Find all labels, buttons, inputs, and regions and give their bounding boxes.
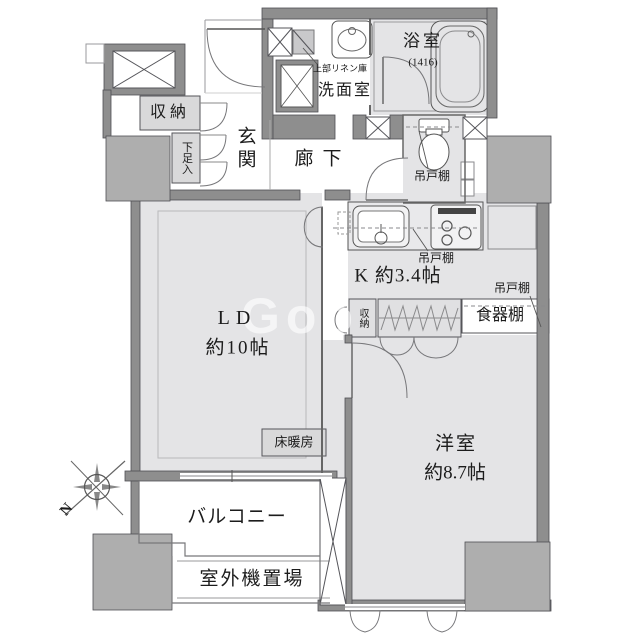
refrigerator-space <box>488 206 536 249</box>
passage-storage-label: 収納 <box>357 308 367 328</box>
floor-heating-label: 床暖房 <box>274 436 313 449</box>
passage-storage-door <box>335 307 347 333</box>
bath-label: 浴室 <box>403 33 443 50</box>
side-hatch-shaft <box>320 478 346 605</box>
pipe-space-boxes <box>461 162 474 196</box>
casement-windows <box>350 611 457 632</box>
western-room-size-label: 約8.7帖 <box>424 464 486 483</box>
outdoor-unit-label: 室外機置場 <box>199 570 304 589</box>
corridor-hatch-2 <box>463 117 487 139</box>
kitchen-shelf-label: 吊戸棚 <box>418 252 454 264</box>
bath-size-label: (1416) <box>408 58 437 69</box>
corridor-hatch-1 <box>366 117 390 139</box>
elevator-hatch <box>113 51 175 88</box>
washroom-hatch <box>268 28 292 56</box>
pantry-shelf-label: 吊戸棚 <box>494 282 530 294</box>
western-room-label: 洋室 <box>435 435 477 454</box>
hallway-label: 廊下 <box>285 150 350 169</box>
porch-lines <box>205 20 262 93</box>
elevator-annex <box>86 44 104 63</box>
western-window-band <box>345 604 465 610</box>
washroom-label: 洗面室 <box>318 83 372 99</box>
kitchen-label: K 約3.4帖 <box>354 267 441 286</box>
entrance-label: 玄関 <box>236 126 255 172</box>
linen-shelf-label: 上部リネン庫 <box>313 65 367 74</box>
shoe-cabinet-label: 下足入 <box>181 142 192 175</box>
kitchen-counter <box>338 202 483 250</box>
compass-icon <box>65 461 125 515</box>
toilet-shelf-label: 吊戸棚 <box>414 170 450 182</box>
living-label: LD <box>212 308 257 328</box>
floorplan: Goo 浴室 (1416) 上部リネン庫 洗面室 収納 下足入 玄関 廊下 吊戸… <box>0 0 640 640</box>
living-size-label: 約10帖 <box>205 339 270 358</box>
entrance-storage-label: 収納 <box>150 105 190 121</box>
front-door <box>207 29 265 87</box>
cupboard-label: 食器棚 <box>476 308 524 324</box>
duct-box <box>293 30 314 54</box>
entrance-storage-doors <box>200 103 227 186</box>
balcony-label: バルコニー <box>187 508 287 527</box>
washing-machine-space <box>276 60 318 112</box>
wash-basin <box>332 21 372 58</box>
